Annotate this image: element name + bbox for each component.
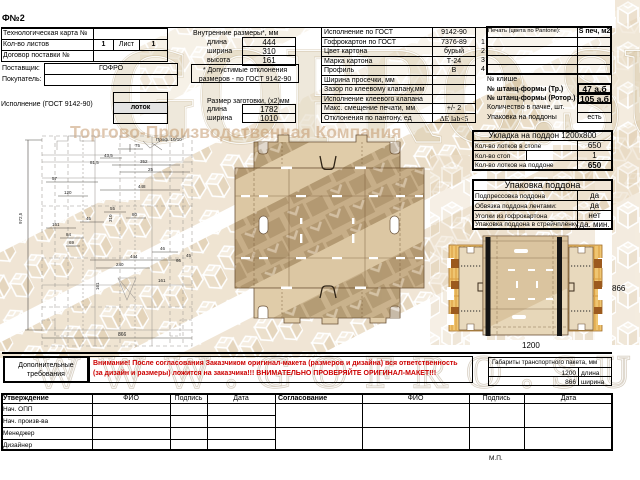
svg-text:444: 444 xyxy=(130,254,138,259)
svg-text:80: 80 xyxy=(132,212,138,217)
svg-text:45: 45 xyxy=(186,253,192,258)
svg-text:46: 46 xyxy=(160,246,166,251)
svg-text:866: 866 xyxy=(612,284,626,293)
svg-text:84: 84 xyxy=(66,232,72,237)
svg-text:1200: 1200 xyxy=(522,341,540,350)
svg-text:69: 69 xyxy=(69,240,75,245)
svg-text:55: 55 xyxy=(110,206,116,211)
svg-text:240: 240 xyxy=(116,262,124,267)
svg-text:Проф. 10/10: Проф. 10/10 xyxy=(156,137,182,142)
svg-text:866: 866 xyxy=(118,332,127,338)
svg-text:81,5: 81,5 xyxy=(90,160,99,165)
svg-text:310: 310 xyxy=(108,214,113,222)
svg-text:120: 120 xyxy=(64,190,72,195)
svg-text:57: 57 xyxy=(52,176,58,181)
svg-text:448: 448 xyxy=(138,184,146,189)
svg-text:25: 25 xyxy=(148,167,154,172)
svg-text:43,5: 43,5 xyxy=(104,153,113,158)
svg-text:45: 45 xyxy=(86,216,92,221)
svg-text:161: 161 xyxy=(95,282,100,290)
svg-text:352: 352 xyxy=(140,159,148,164)
svg-text:75: 75 xyxy=(135,143,141,148)
svg-text:66: 66 xyxy=(176,258,182,263)
svg-text:972,5: 972,5 xyxy=(18,212,23,224)
svg-text:161: 161 xyxy=(158,278,166,283)
svg-text:161: 161 xyxy=(52,222,60,227)
